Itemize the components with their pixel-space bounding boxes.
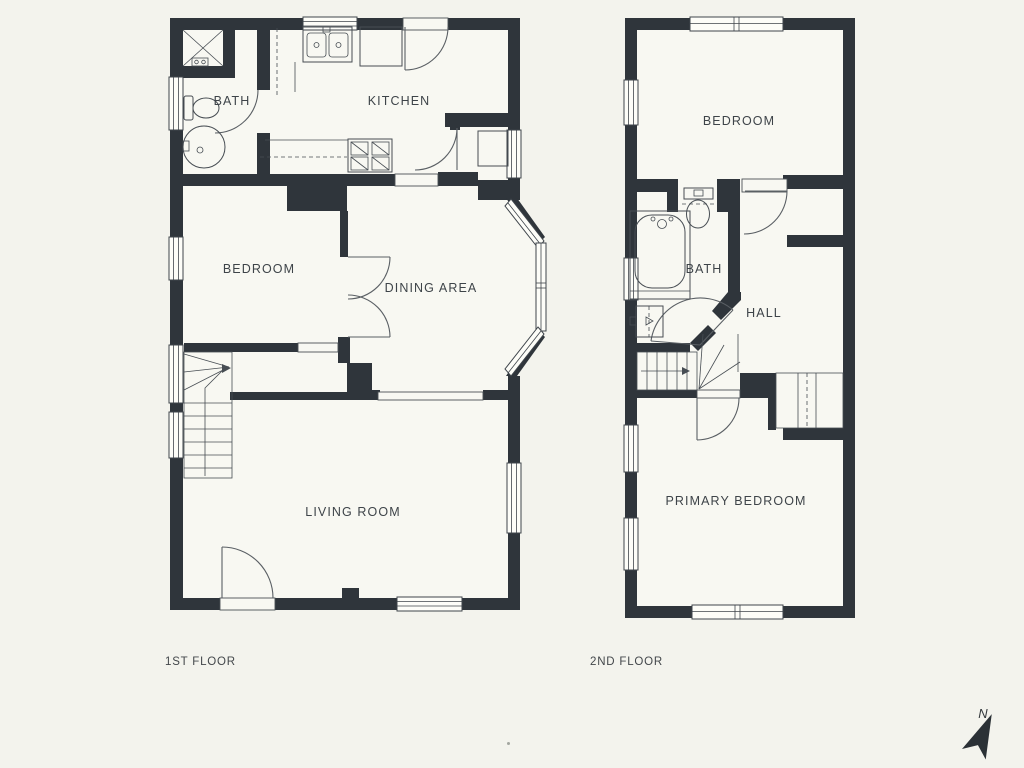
- room-label-kitchen: KITCHEN: [368, 94, 431, 108]
- north-arrow-icon: N: [940, 690, 1024, 768]
- speck-artifact: [507, 742, 510, 745]
- window: [624, 425, 638, 472]
- room-label-bedroom-1f: BEDROOM: [223, 262, 295, 276]
- room-label-bath-1f: BATH: [214, 94, 251, 108]
- window: [624, 518, 638, 570]
- window: [624, 80, 638, 125]
- window: [169, 345, 183, 403]
- room-label-primary-bedroom: PRIMARY BEDROOM: [665, 494, 806, 508]
- floor-plan-image: BATH KITCHEN BEDROOM DINING AREA LIVING …: [0, 0, 1024, 768]
- caption-first-floor: 1ST FLOOR: [165, 656, 236, 668]
- window: [692, 605, 783, 619]
- window: [397, 597, 462, 611]
- window: [624, 258, 638, 300]
- window: [169, 412, 183, 458]
- second-floor-base: [625, 18, 855, 618]
- window: [690, 17, 783, 31]
- room-label-bath-2f: BATH: [686, 262, 723, 276]
- room-label-dining-area: DINING AREA: [385, 281, 478, 295]
- room-label-living-room: LIVING ROOM: [305, 505, 400, 519]
- room-label-hall: HALL: [746, 306, 782, 320]
- compass-n-label: N: [978, 706, 988, 721]
- window: [169, 77, 183, 130]
- window: [169, 237, 183, 280]
- window: [507, 130, 521, 178]
- room-label-bedroom-2f: BEDROOM: [703, 114, 775, 128]
- window: [507, 463, 521, 533]
- second-floor-plan: [610, 10, 865, 630]
- caption-second-floor: 2ND FLOOR: [590, 656, 663, 668]
